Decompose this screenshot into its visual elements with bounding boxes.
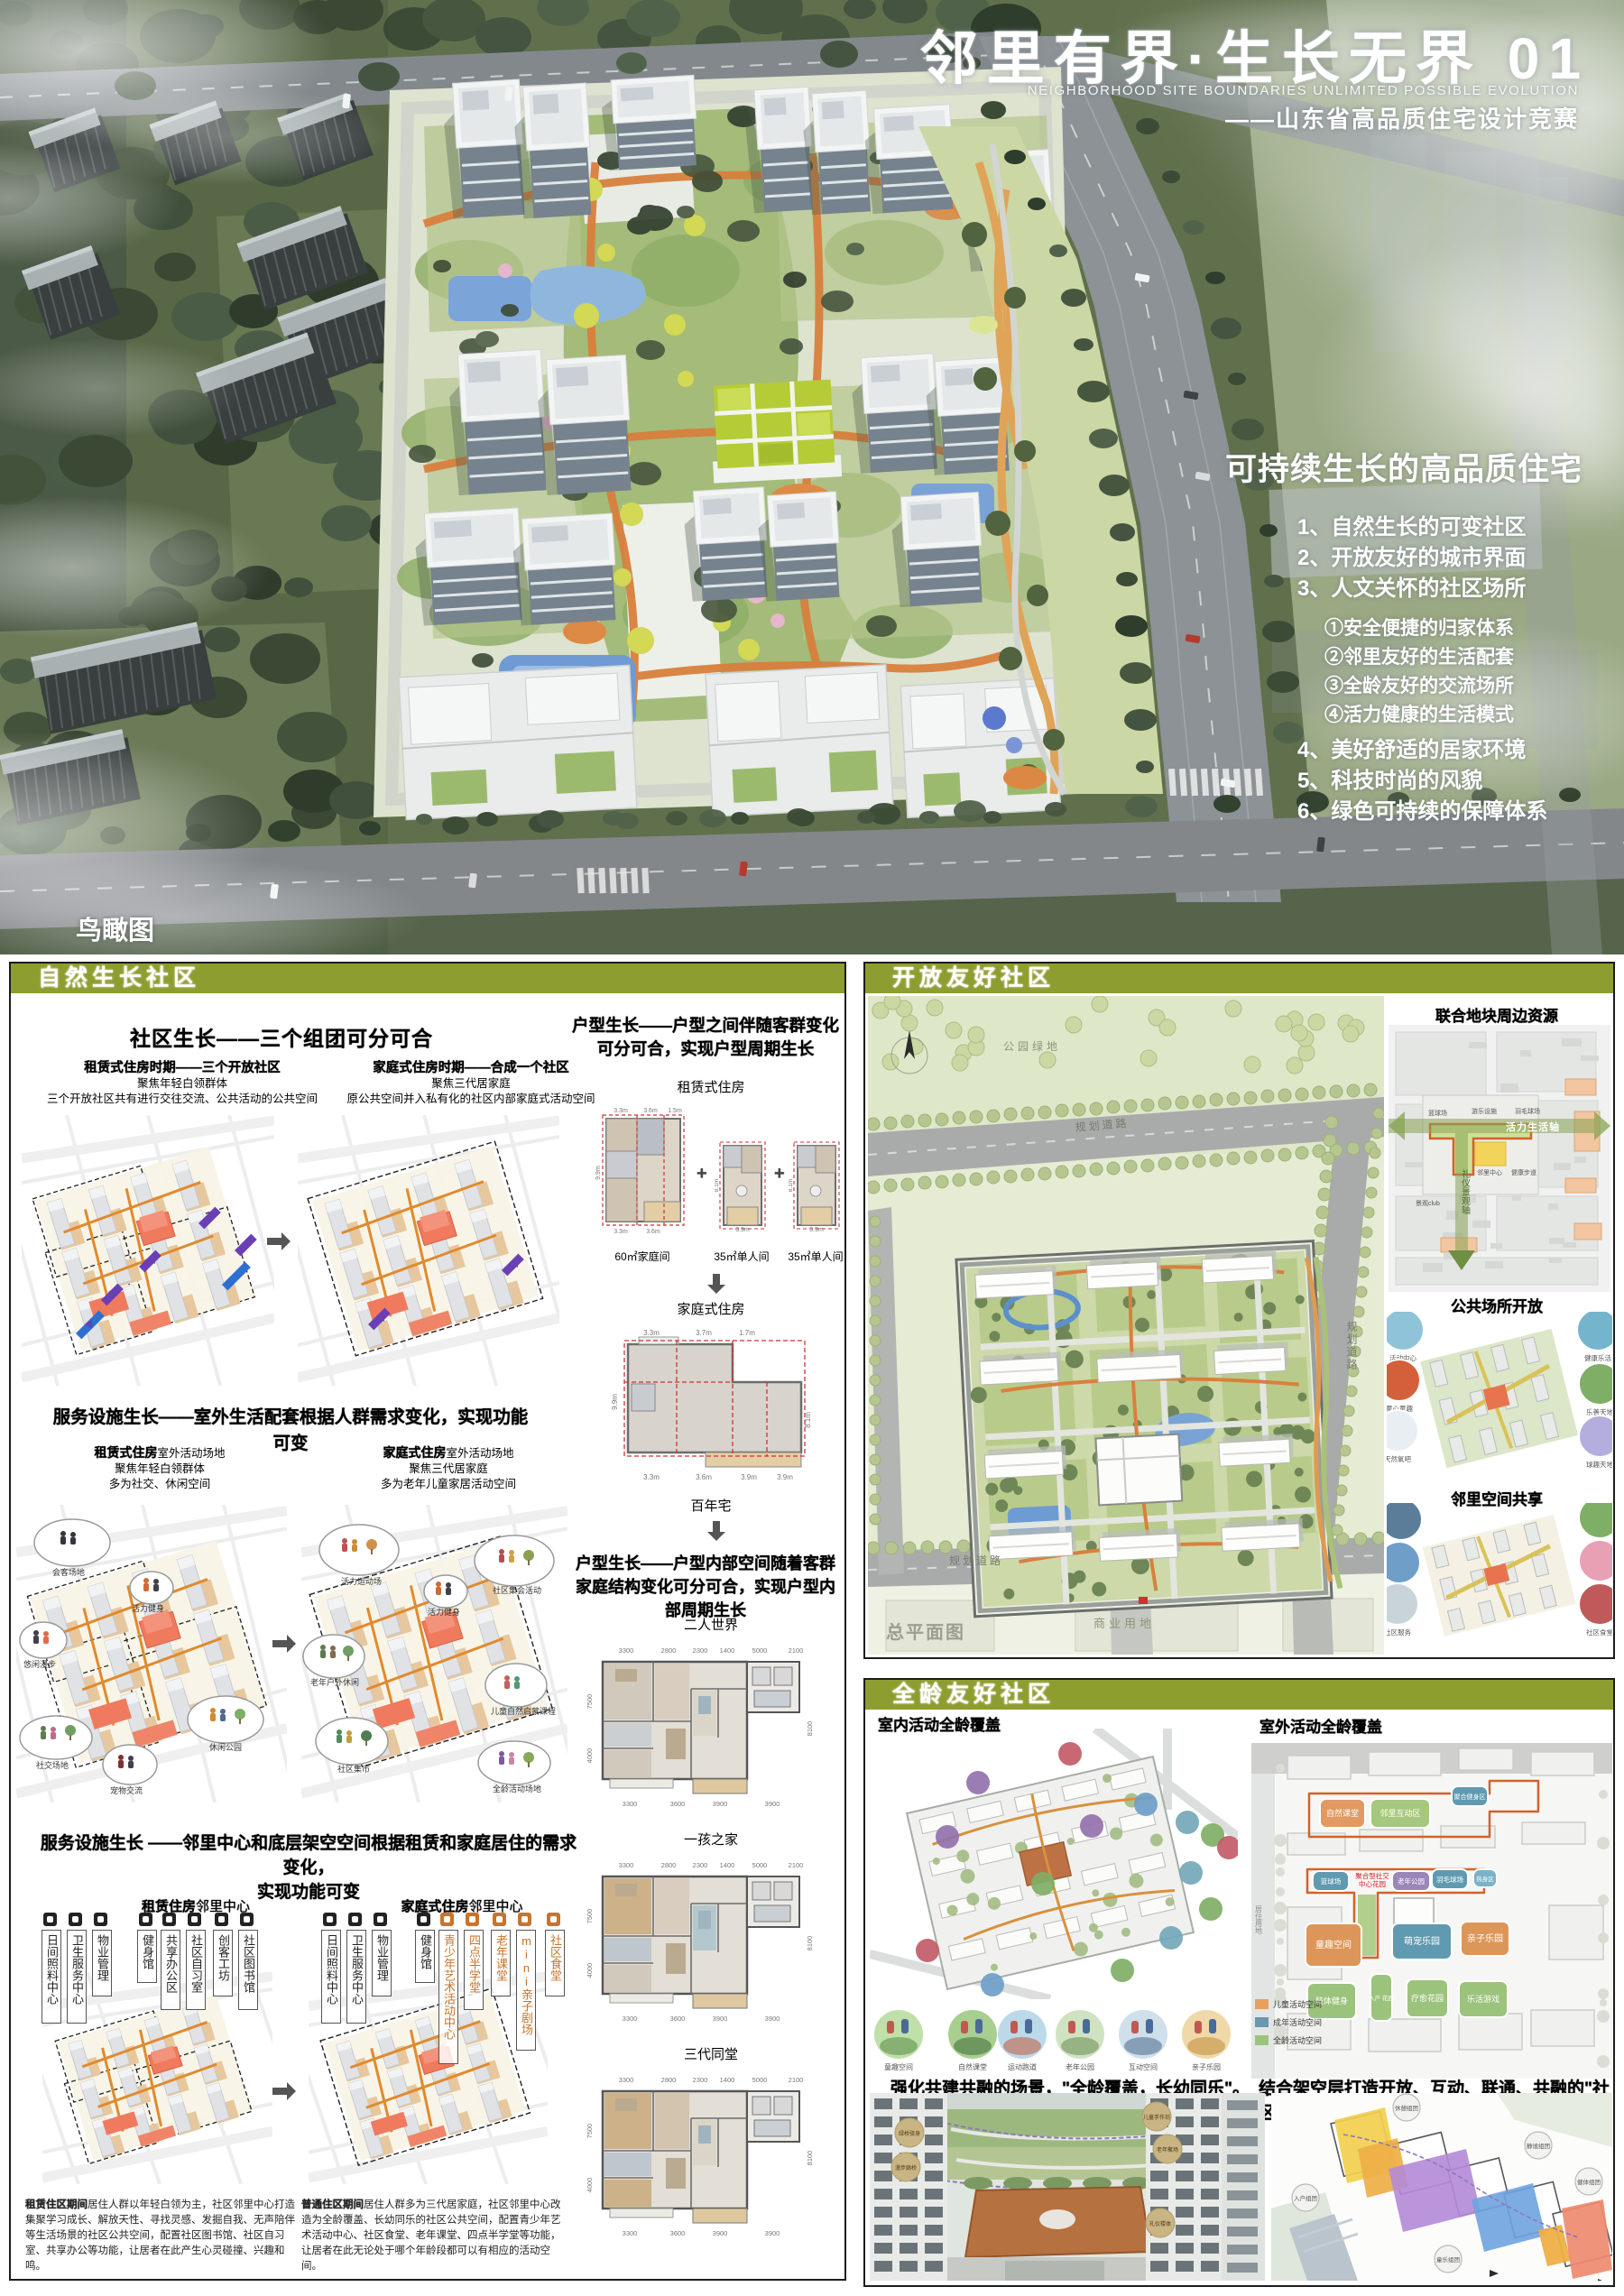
svg-text:宠物交流: 宠物交流 <box>110 1785 143 1795</box>
svg-text:静谧组团: 静谧组团 <box>1527 2142 1550 2150</box>
svg-text:邻里中心: 邻里中心 <box>1477 1168 1502 1176</box>
svg-text:8100: 8100 <box>806 1721 814 1737</box>
svg-text:篮球场: 篮球场 <box>1321 1876 1342 1886</box>
svg-text:3900: 3900 <box>765 1800 780 1808</box>
svg-text:公园绿地: 公园绿地 <box>1003 1039 1061 1053</box>
svg-text:3900: 3900 <box>765 2015 780 2023</box>
svg-text:悠闲漫步: 悠闲漫步 <box>23 1659 56 1669</box>
svg-text:3.3m: 3.3m <box>614 1108 628 1114</box>
svg-text:篮球场: 篮球场 <box>1428 1109 1447 1117</box>
svg-text:8100: 8100 <box>806 2151 814 2166</box>
svg-text:3.9m: 3.9m <box>741 1473 757 1481</box>
svg-text:2300: 2300 <box>693 1861 708 1869</box>
svg-text:7500: 7500 <box>586 2124 594 2139</box>
svg-text:5000: 5000 <box>752 2076 768 2084</box>
svg-text:3600: 3600 <box>670 1800 686 1808</box>
svg-text:1.7m: 1.7m <box>739 1329 755 1337</box>
svg-text:3900: 3900 <box>713 2229 728 2237</box>
svg-text:2100: 2100 <box>789 1646 804 1655</box>
svg-text:老年公园: 老年公园 <box>1398 1876 1425 1886</box>
svg-text:3300: 3300 <box>619 1861 634 1869</box>
svg-text:3900: 3900 <box>713 1800 728 1808</box>
svg-text:5000: 5000 <box>752 1861 768 1869</box>
svg-text:3.6m: 3.6m <box>646 1229 660 1235</box>
svg-text:3.6m: 3.6m <box>643 1108 658 1114</box>
svg-text:3300: 3300 <box>623 1800 638 1808</box>
svg-text:2100: 2100 <box>789 2076 804 2084</box>
svg-text:健体组团: 健体组团 <box>1577 2178 1601 2186</box>
svg-text:规划道路: 规划道路 <box>1345 1320 1358 1371</box>
svg-text:童乐组团: 童乐组团 <box>1436 2255 1460 2264</box>
svg-text:中心花园: 中心花园 <box>1359 1879 1386 1888</box>
svg-text:邻里互动区: 邻里互动区 <box>1379 1808 1420 1818</box>
svg-text:球趣天地: 球趣天地 <box>1586 1460 1612 1469</box>
svg-text:8.1m: 8.1m <box>789 1179 794 1192</box>
svg-text:3.9m: 3.9m <box>777 1473 793 1481</box>
svg-text:7500: 7500 <box>586 1694 594 1710</box>
svg-text:羽毛球场: 羽毛球场 <box>1436 1875 1463 1884</box>
svg-text:社区服务: 社区服务 <box>1387 1627 1411 1637</box>
svg-text:老年户外休闲: 老年户外休闲 <box>310 1677 359 1687</box>
svg-text:热身区: 热身区 <box>1476 1875 1494 1883</box>
svg-text:3900: 3900 <box>713 2015 728 2023</box>
svg-text:绿桥驿身: 绿桥驿身 <box>899 2130 920 2137</box>
svg-text:游乐设施: 游乐设施 <box>1472 1107 1497 1115</box>
svg-text:8100: 8100 <box>806 1936 814 1951</box>
svg-text:1.5m: 1.5m <box>668 1108 682 1114</box>
svg-text:3300: 3300 <box>623 2229 638 2237</box>
svg-text:活力运动场: 活力运动场 <box>341 1576 382 1586</box>
svg-text:羽毛球场: 羽毛球场 <box>1515 1107 1540 1115</box>
svg-text:亲子乐园: 亲子乐园 <box>1467 1932 1503 1944</box>
svg-text:居住用地: 居住用地 <box>1255 1905 1263 1934</box>
svg-text:入户组团: 入户组团 <box>1294 2194 1317 2202</box>
svg-text:休憩组团: 休憩组团 <box>1395 2104 1418 2112</box>
svg-text:健康步道: 健康步道 <box>1511 1168 1536 1176</box>
svg-text:活力生活轴: 活力生活轴 <box>1506 1120 1560 1133</box>
svg-text:社区集会活动: 社区集会活动 <box>493 1585 541 1595</box>
svg-text:健康乐活: 健康乐活 <box>1584 1353 1611 1362</box>
svg-text:儿童手作坊: 儿童手作坊 <box>1143 2114 1170 2121</box>
svg-text:2100: 2100 <box>789 1861 804 1869</box>
svg-text:儿童活动空间: 儿童活动空间 <box>1273 1999 1322 2009</box>
svg-text:会客场地: 会客场地 <box>52 1567 85 1577</box>
svg-text:2800: 2800 <box>661 1646 677 1655</box>
svg-text:全龄活动空间: 全龄活动空间 <box>1273 2035 1322 2045</box>
svg-text:3.6m: 3.6m <box>696 1473 712 1481</box>
svg-text:自然课堂: 自然课堂 <box>1326 1808 1359 1818</box>
svg-text:9.9m: 9.9m <box>595 1166 602 1180</box>
svg-text:3.9m: 3.9m <box>735 1227 750 1233</box>
svg-text:1400: 1400 <box>720 2076 735 2084</box>
svg-text:3.9m: 3.9m <box>809 1227 824 1233</box>
svg-text:商业用地: 商业用地 <box>1093 1617 1155 1630</box>
svg-text:儿童自然启蒙课程: 儿童自然启蒙课程 <box>491 1706 556 1716</box>
svg-text:成年活动空间: 成年活动空间 <box>1273 2017 1322 2027</box>
svg-text:8.1m: 8.1m <box>804 1412 812 1428</box>
svg-text:2800: 2800 <box>661 1861 677 1869</box>
svg-text:3.3m: 3.3m <box>643 1329 660 1337</box>
svg-text:天然氧吧: 天然氧吧 <box>1387 1454 1411 1463</box>
svg-text:1400: 1400 <box>720 1646 735 1655</box>
svg-text:9.9m: 9.9m <box>611 1394 619 1410</box>
svg-text:礼仪景观轴: 礼仪景观轴 <box>1460 1168 1471 1215</box>
svg-text:景观club: 景观club <box>1416 1200 1440 1207</box>
svg-text:老年聚场: 老年聚场 <box>1157 2146 1178 2153</box>
svg-text:4000: 4000 <box>586 1748 594 1764</box>
svg-text:活力健身: 活力健身 <box>132 1603 164 1613</box>
svg-text:入户 花园: 入户 花园 <box>1369 1994 1394 2002</box>
svg-text:规划道路: 规划道路 <box>949 1554 1003 1567</box>
svg-text:2300: 2300 <box>693 2076 708 2084</box>
svg-text:3.3m: 3.3m <box>614 1229 628 1235</box>
svg-text:3300: 3300 <box>623 2015 638 2023</box>
svg-text:3.3m: 3.3m <box>643 1473 660 1481</box>
svg-text:3600: 3600 <box>670 2229 686 2237</box>
svg-text:社区集市: 社区集市 <box>337 1764 370 1774</box>
svg-text:疗愈花园: 疗愈花园 <box>1411 1993 1444 2003</box>
svg-text:总平面图: 总平面图 <box>886 1621 965 1643</box>
svg-text:童趣空间: 童趣空间 <box>1315 1939 1352 1950</box>
svg-text:社交场地: 社交场地 <box>36 1760 69 1770</box>
svg-text:漫步廊桥: 漫步廊桥 <box>895 2164 917 2172</box>
svg-text:3600: 3600 <box>670 2015 686 2023</box>
svg-text:萌宠乐园: 萌宠乐园 <box>1404 1935 1440 1947</box>
svg-text:活力健身: 活力健身 <box>428 1607 460 1617</box>
svg-text:4000: 4000 <box>586 2178 594 2193</box>
svg-text:3300: 3300 <box>619 2076 634 2084</box>
svg-text:社区食堂: 社区食堂 <box>1586 1627 1612 1637</box>
svg-text:3300: 3300 <box>619 1646 634 1655</box>
svg-text:7500: 7500 <box>586 1909 594 1924</box>
svg-text:聚合健身区: 聚合健身区 <box>1454 1793 1486 1801</box>
svg-text:4000: 4000 <box>586 1963 594 1978</box>
svg-text:1400: 1400 <box>720 1861 735 1869</box>
svg-text:3900: 3900 <box>765 2229 780 2237</box>
svg-text:8.1m: 8.1m <box>715 1179 720 1192</box>
svg-text:2800: 2800 <box>661 2076 677 2084</box>
svg-text:全龄活动场地: 全龄活动场地 <box>493 1784 541 1793</box>
svg-text:5000: 5000 <box>752 1646 768 1655</box>
svg-text:3.7m: 3.7m <box>696 1329 712 1337</box>
svg-text:休闲公园: 休闲公园 <box>209 1742 242 1752</box>
svg-text:礼仪楼体: 礼仪楼体 <box>1149 2220 1171 2227</box>
svg-text:聚合型社交: 聚合型社交 <box>1355 1871 1389 1880</box>
svg-text:2300: 2300 <box>693 1646 708 1655</box>
svg-text:乐活游戏: 乐活游戏 <box>1467 1994 1499 2004</box>
